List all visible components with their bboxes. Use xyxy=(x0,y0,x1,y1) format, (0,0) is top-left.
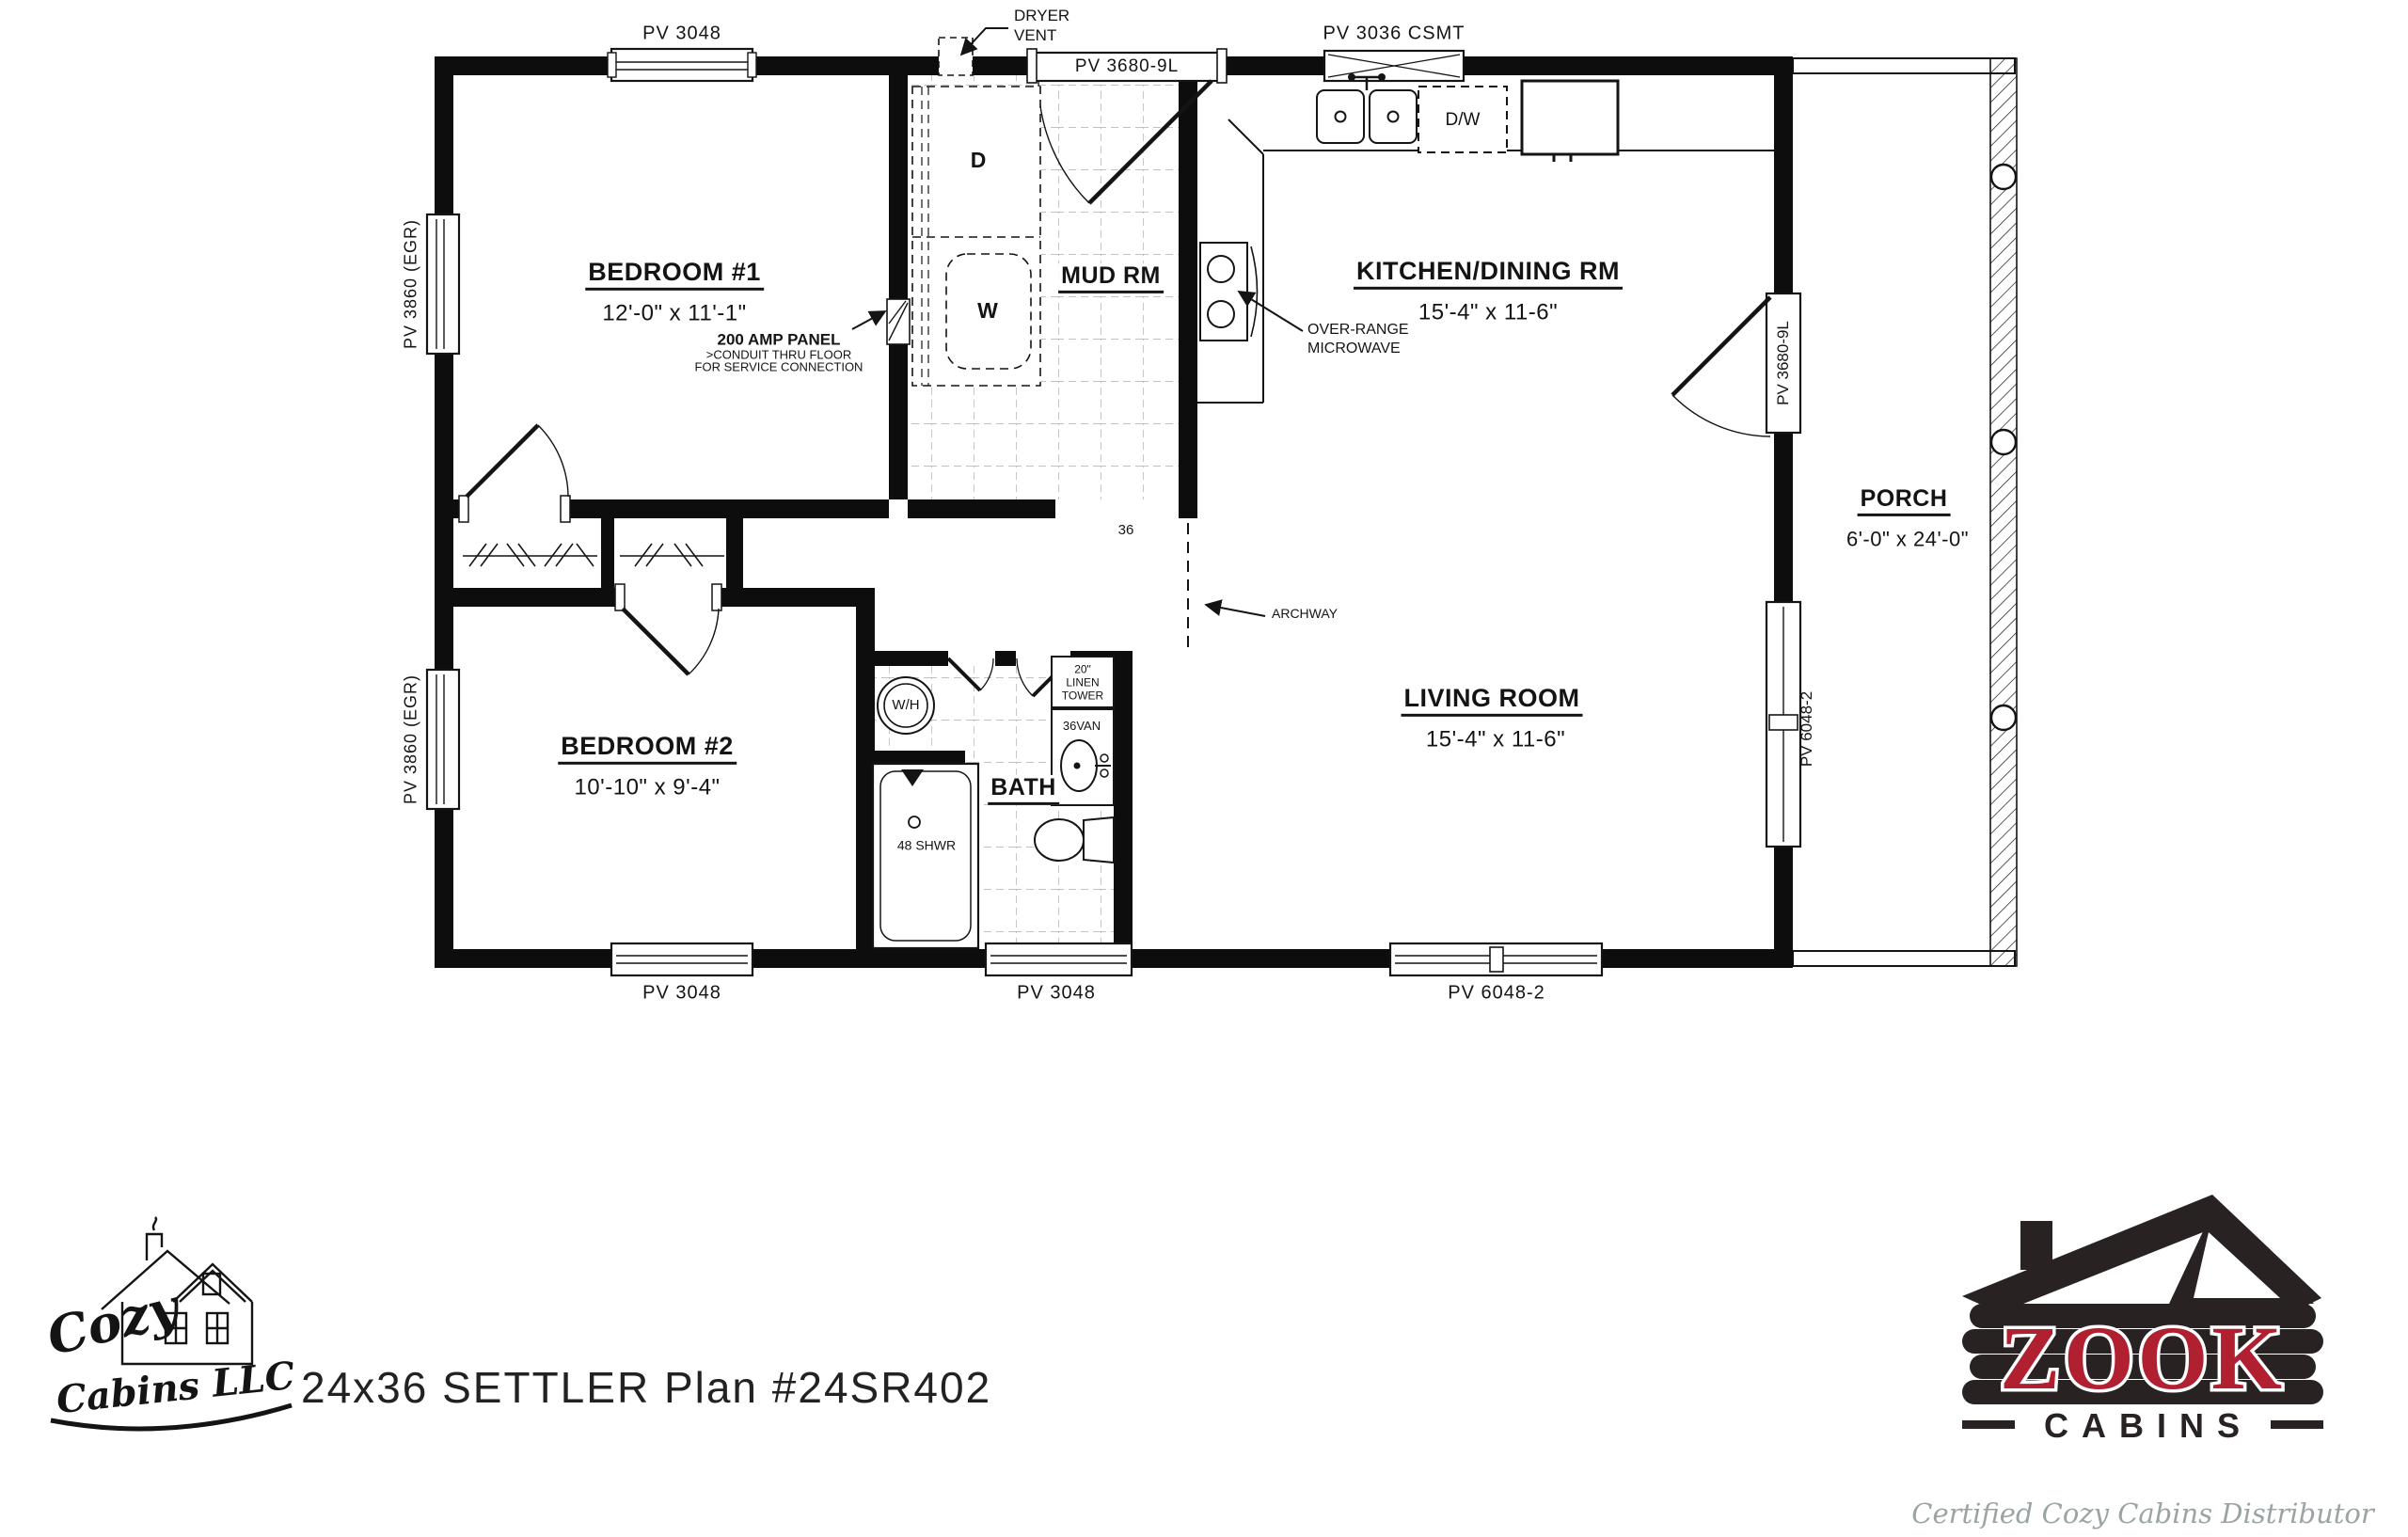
label-window-pv6048-living: PV 6048-2 xyxy=(1448,984,1545,1004)
microwave-leader xyxy=(1239,292,1303,331)
room-label-living: LIVING ROOM xyxy=(1402,685,1583,717)
annotation-panel: 200 AMP PANEL >CONDUIT THRU FLOOR FOR SE… xyxy=(695,331,863,373)
room-dims-bedroom2: 10'-10" x 9'-4" xyxy=(574,775,720,799)
annotation-archway: ARCHWAY xyxy=(1272,606,1338,621)
window-pv3860-top xyxy=(427,214,459,354)
zook-cabins-logo: ZOOK CABINS xyxy=(1934,1183,2352,1494)
floor-plan-page: PV 3048 PV 3680-9L PV 3036 CSMT PV 3860 … xyxy=(0,0,2408,1537)
window-pv6048-living xyxy=(1390,943,1602,975)
wall-exterior-left xyxy=(435,56,453,968)
porch-rail-hatch xyxy=(1990,58,2017,966)
porch-post xyxy=(1991,430,2016,454)
annotation-dryer-vent: DRYER VENT xyxy=(1014,6,1069,45)
zook-cabins-text: CABINS xyxy=(2044,1406,2253,1445)
room-dims-living: 15'-4" x 11-6" xyxy=(1426,727,1565,751)
label-window-pv3860-top: PV 3860 (EGR) xyxy=(403,219,420,349)
window-pv6048-right xyxy=(1766,602,1800,847)
label-washer: W xyxy=(977,299,998,322)
kitchen-sink xyxy=(1317,73,1417,143)
room-dims-porch: 6'-0" x 24'-0" xyxy=(1846,528,1969,549)
cozy-logo-text-1: Cozy xyxy=(45,1276,187,1367)
wall-bed2-top-left xyxy=(453,588,620,607)
label-window-pv6048-right: PV 6048-2 xyxy=(1798,691,1815,767)
kitchen-range xyxy=(1200,243,1258,341)
wall-bed2-top-right xyxy=(720,588,856,607)
room-label-mudroom: MUD RM xyxy=(1058,263,1164,293)
label-linen-2: LINEN xyxy=(1066,677,1099,689)
label-door-mudroom: PV 3680-9L xyxy=(1075,57,1179,76)
room-label-bedroom2: BEDROOM #2 xyxy=(558,733,737,765)
label-window-pv3048-top: PV 3048 xyxy=(642,24,721,44)
cozy-cabins-logo: Cozy Cabins LLC xyxy=(45,1215,299,1450)
wall-mudroom-right xyxy=(1179,75,1197,518)
wall-closet-divider xyxy=(601,518,614,588)
zook-wordmark: ZOOK xyxy=(2000,1307,2286,1408)
label-door-porch: PV 3680-9L xyxy=(1775,321,1792,405)
room-dims-bedroom1: 12'-0" x 11'-1" xyxy=(602,301,746,325)
label-window-pv3860-bottom: PV 3860 (EGR) xyxy=(403,674,420,804)
window-pv3860-bottom xyxy=(427,670,459,809)
wall-shower-divider xyxy=(875,751,965,764)
room-dims-kitchen: 15'-4" x 11-6" xyxy=(1418,300,1558,324)
floor-plan-drawing xyxy=(0,0,2408,1035)
plan-title: 24x36 SETTLER Plan #24SR402 xyxy=(301,1362,991,1413)
label-hall-opening-36: 36 xyxy=(1118,523,1134,538)
window-pv3048-top xyxy=(608,49,756,81)
porch-post xyxy=(1991,705,2016,730)
door-bedroom1 xyxy=(459,425,570,522)
closet-rod-bedroom1 xyxy=(463,544,597,566)
room-label-porch: PORCH xyxy=(1858,486,1951,516)
label-vanity: 36VAN xyxy=(1063,720,1101,733)
wall-bath-top xyxy=(875,651,948,666)
label-window-pv3048-bath: PV 3048 xyxy=(1017,984,1096,1004)
room-label-kitchen: KITCHEN/DINING RM xyxy=(1354,258,1623,290)
zook-roof xyxy=(1962,1195,2321,1313)
wall-bath-right xyxy=(1114,651,1133,949)
label-linen-1: 20" xyxy=(1074,664,1091,676)
label-dryer: D xyxy=(971,149,987,171)
wall-hall-a xyxy=(562,499,889,518)
label-water-heater: W/H xyxy=(892,698,919,713)
window-pv3048-bed2 xyxy=(611,943,752,975)
closet-rod-bedroom2 xyxy=(620,544,724,566)
window-pv3036-kitchen xyxy=(1324,51,1464,81)
shower xyxy=(873,764,978,948)
label-window-pv3036: PV 3036 CSMT xyxy=(1323,24,1465,44)
zook-tagline: Certified Cozy Cabins Distributor xyxy=(1906,1497,2380,1529)
dryer-vent xyxy=(939,38,973,75)
panel-leader xyxy=(852,311,885,329)
label-shower: 48 SHWR xyxy=(897,839,956,853)
laundry-closet xyxy=(912,87,1040,386)
wall-laundry-left xyxy=(889,75,908,499)
label-linen-3: TOWER xyxy=(1062,690,1103,703)
door-bedroom2 xyxy=(615,584,721,674)
zook-cabins-row: CABINS xyxy=(1962,1406,2323,1445)
room-label-bedroom1: BEDROOM #1 xyxy=(585,259,764,291)
annotation-microwave: OVER-RANGE MICROWAVE xyxy=(1307,321,1409,358)
zook-chimney xyxy=(2020,1221,2052,1270)
porch-post xyxy=(1991,165,2016,189)
label-window-pv3048-bed2: PV 3048 xyxy=(642,984,721,1004)
archway-leader xyxy=(1206,605,1265,616)
window-pv3048-bath xyxy=(986,943,1132,975)
shower-drain xyxy=(909,816,920,828)
wall-hall-a2 xyxy=(908,499,1055,518)
room-label-bath: BATH xyxy=(988,775,1059,805)
kitchen-refrigerator xyxy=(1522,81,1618,162)
label-dishwasher: D/W xyxy=(1446,111,1481,130)
toilet xyxy=(1035,817,1114,863)
electrical-panel xyxy=(887,299,910,344)
